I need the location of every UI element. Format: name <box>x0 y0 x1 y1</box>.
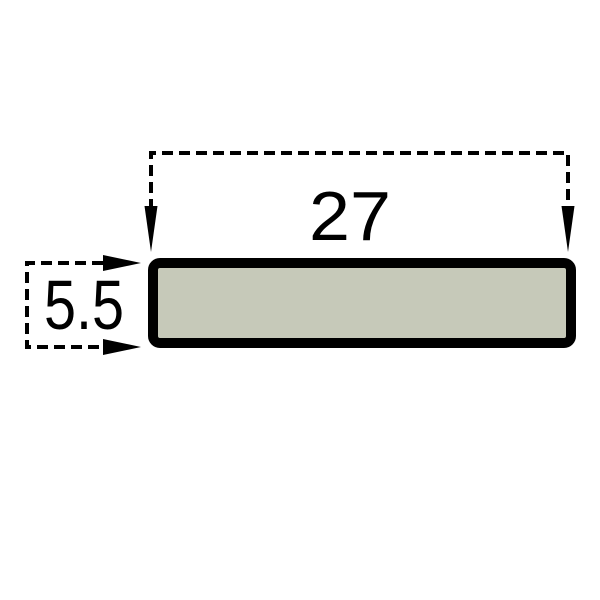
profile-bar <box>153 263 571 343</box>
height-dimension: 5.5 <box>27 255 141 355</box>
width-dimension-label: 27 <box>309 177 391 255</box>
height-dimension-label: 5.5 <box>44 266 124 344</box>
technical-drawing: 27 5.5 <box>0 0 600 600</box>
width-dimension: 27 <box>145 153 575 255</box>
width-arrow-right-down-icon <box>562 206 575 252</box>
width-arrow-left-down-icon <box>145 206 158 252</box>
